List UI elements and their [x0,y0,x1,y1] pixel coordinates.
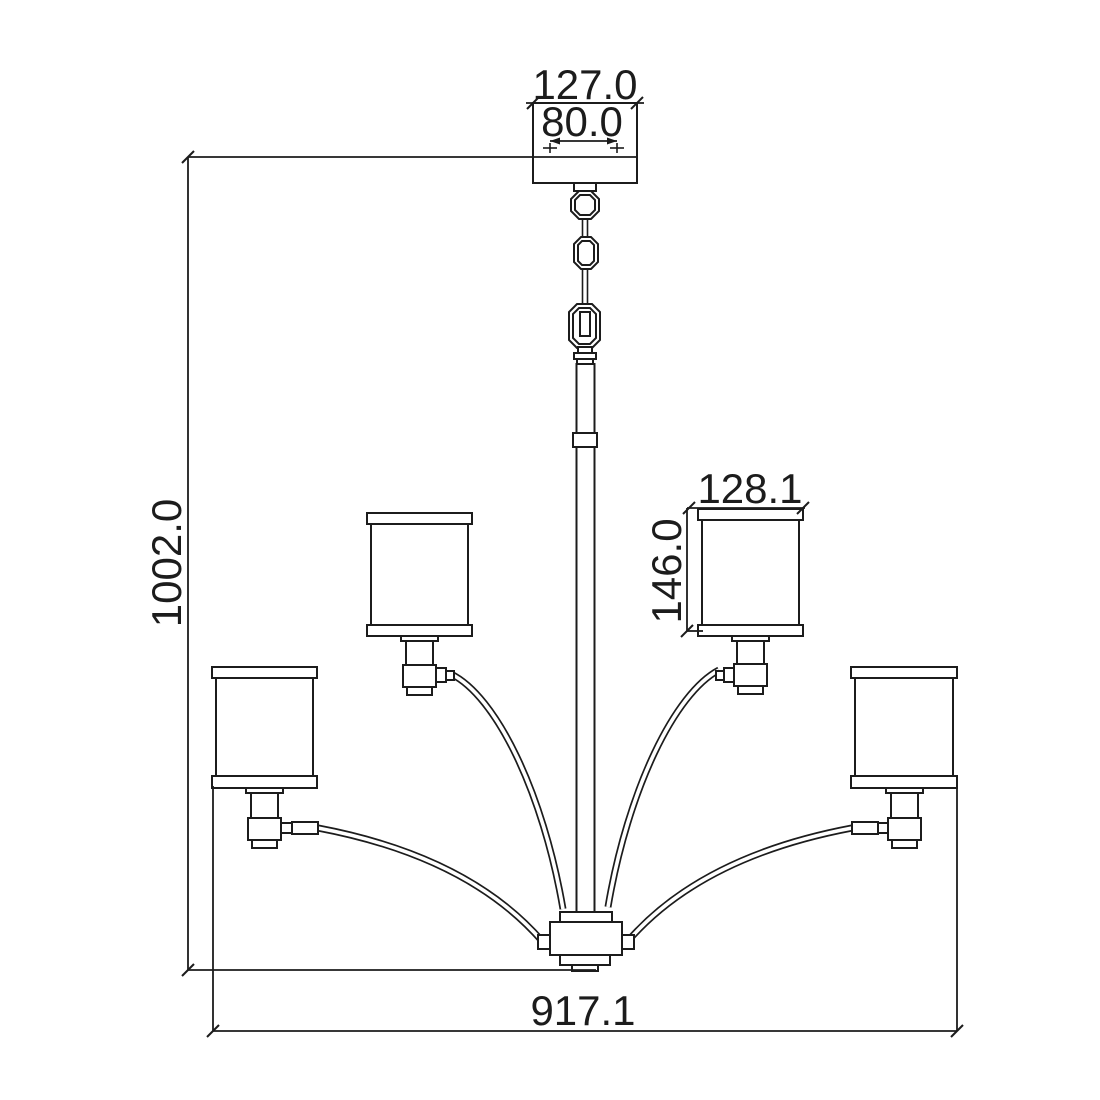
dim-shade-width: 128.1 [683,465,809,514]
technical-drawing-page: 127.0 80.0 1002.0 128.1 [0,0,1100,1100]
socket-elbow [888,818,921,840]
socket-cup [406,641,433,665]
shade-drum [855,678,953,776]
shade-top-band [367,513,472,524]
shade-inner-left [367,513,472,695]
shade-drum [216,678,313,776]
chain-link-inner [575,195,595,215]
shade-top-band [212,667,317,678]
shade-drum [371,524,468,625]
center-hub [538,912,634,971]
dim-shade-height-value: 146.0 [643,518,690,623]
socket-cap [892,840,917,848]
arm-connector [724,668,734,682]
arm-outer-right [628,822,889,941]
rod-band [573,433,597,447]
hub-bottom-cap [560,955,610,965]
shade-bottom-band [698,625,803,636]
arm-connector [436,668,446,682]
hub-arm-tab-left [538,935,550,949]
shade-top-band [851,667,957,678]
chain-link-slot [580,312,590,336]
socket-elbow [403,665,436,687]
chain-link-inner [578,241,594,265]
shade-bottom-band [367,625,472,636]
dimension-annotations: 127.0 80.0 1002.0 128.1 [143,61,963,1037]
shade-outer-left [212,667,317,848]
rod-collar [577,359,593,364]
socket-cup [737,641,764,664]
hub-top-step [560,912,612,922]
arm-sleeve [292,822,318,834]
shade-outer-right [851,667,957,848]
shade-bottom-band [212,776,317,788]
dim-overall-height-value: 1002.0 [143,499,190,627]
socket-cup [251,793,278,818]
socket-cap [252,840,277,848]
arm-connector [281,823,292,833]
shade-drum [702,520,799,625]
chandelier [212,103,957,971]
socket-elbow [248,818,281,840]
arm-connector-nub [716,671,724,680]
shade-inner-right [698,509,803,694]
socket-elbow [734,664,767,686]
arm-sleeve [852,822,878,834]
socket-cap [407,687,432,695]
hub-arm-tab-right [622,935,634,949]
socket-cup [891,793,918,818]
hub-body [550,922,622,955]
dim-shade-height: 146.0 [643,508,703,637]
dim-shade-width-value: 128.1 [697,465,802,512]
dim-mount-spacing-value: 80.0 [541,98,623,145]
arm-connector-nub [446,671,454,680]
canopy-collar [574,183,596,191]
hanging-chain [569,191,600,364]
chandelier-dimension-diagram: 127.0 80.0 1002.0 128.1 [0,0,1100,1100]
dim-mount-hole-spacing: 80.0 [541,98,624,153]
socket-cap [738,686,763,694]
dim-overall-width-value: 917.1 [530,987,635,1034]
shade-bottom-band [851,776,957,788]
arms [281,668,889,941]
center-rod [573,363,597,913]
arm-outer-left [281,822,542,941]
